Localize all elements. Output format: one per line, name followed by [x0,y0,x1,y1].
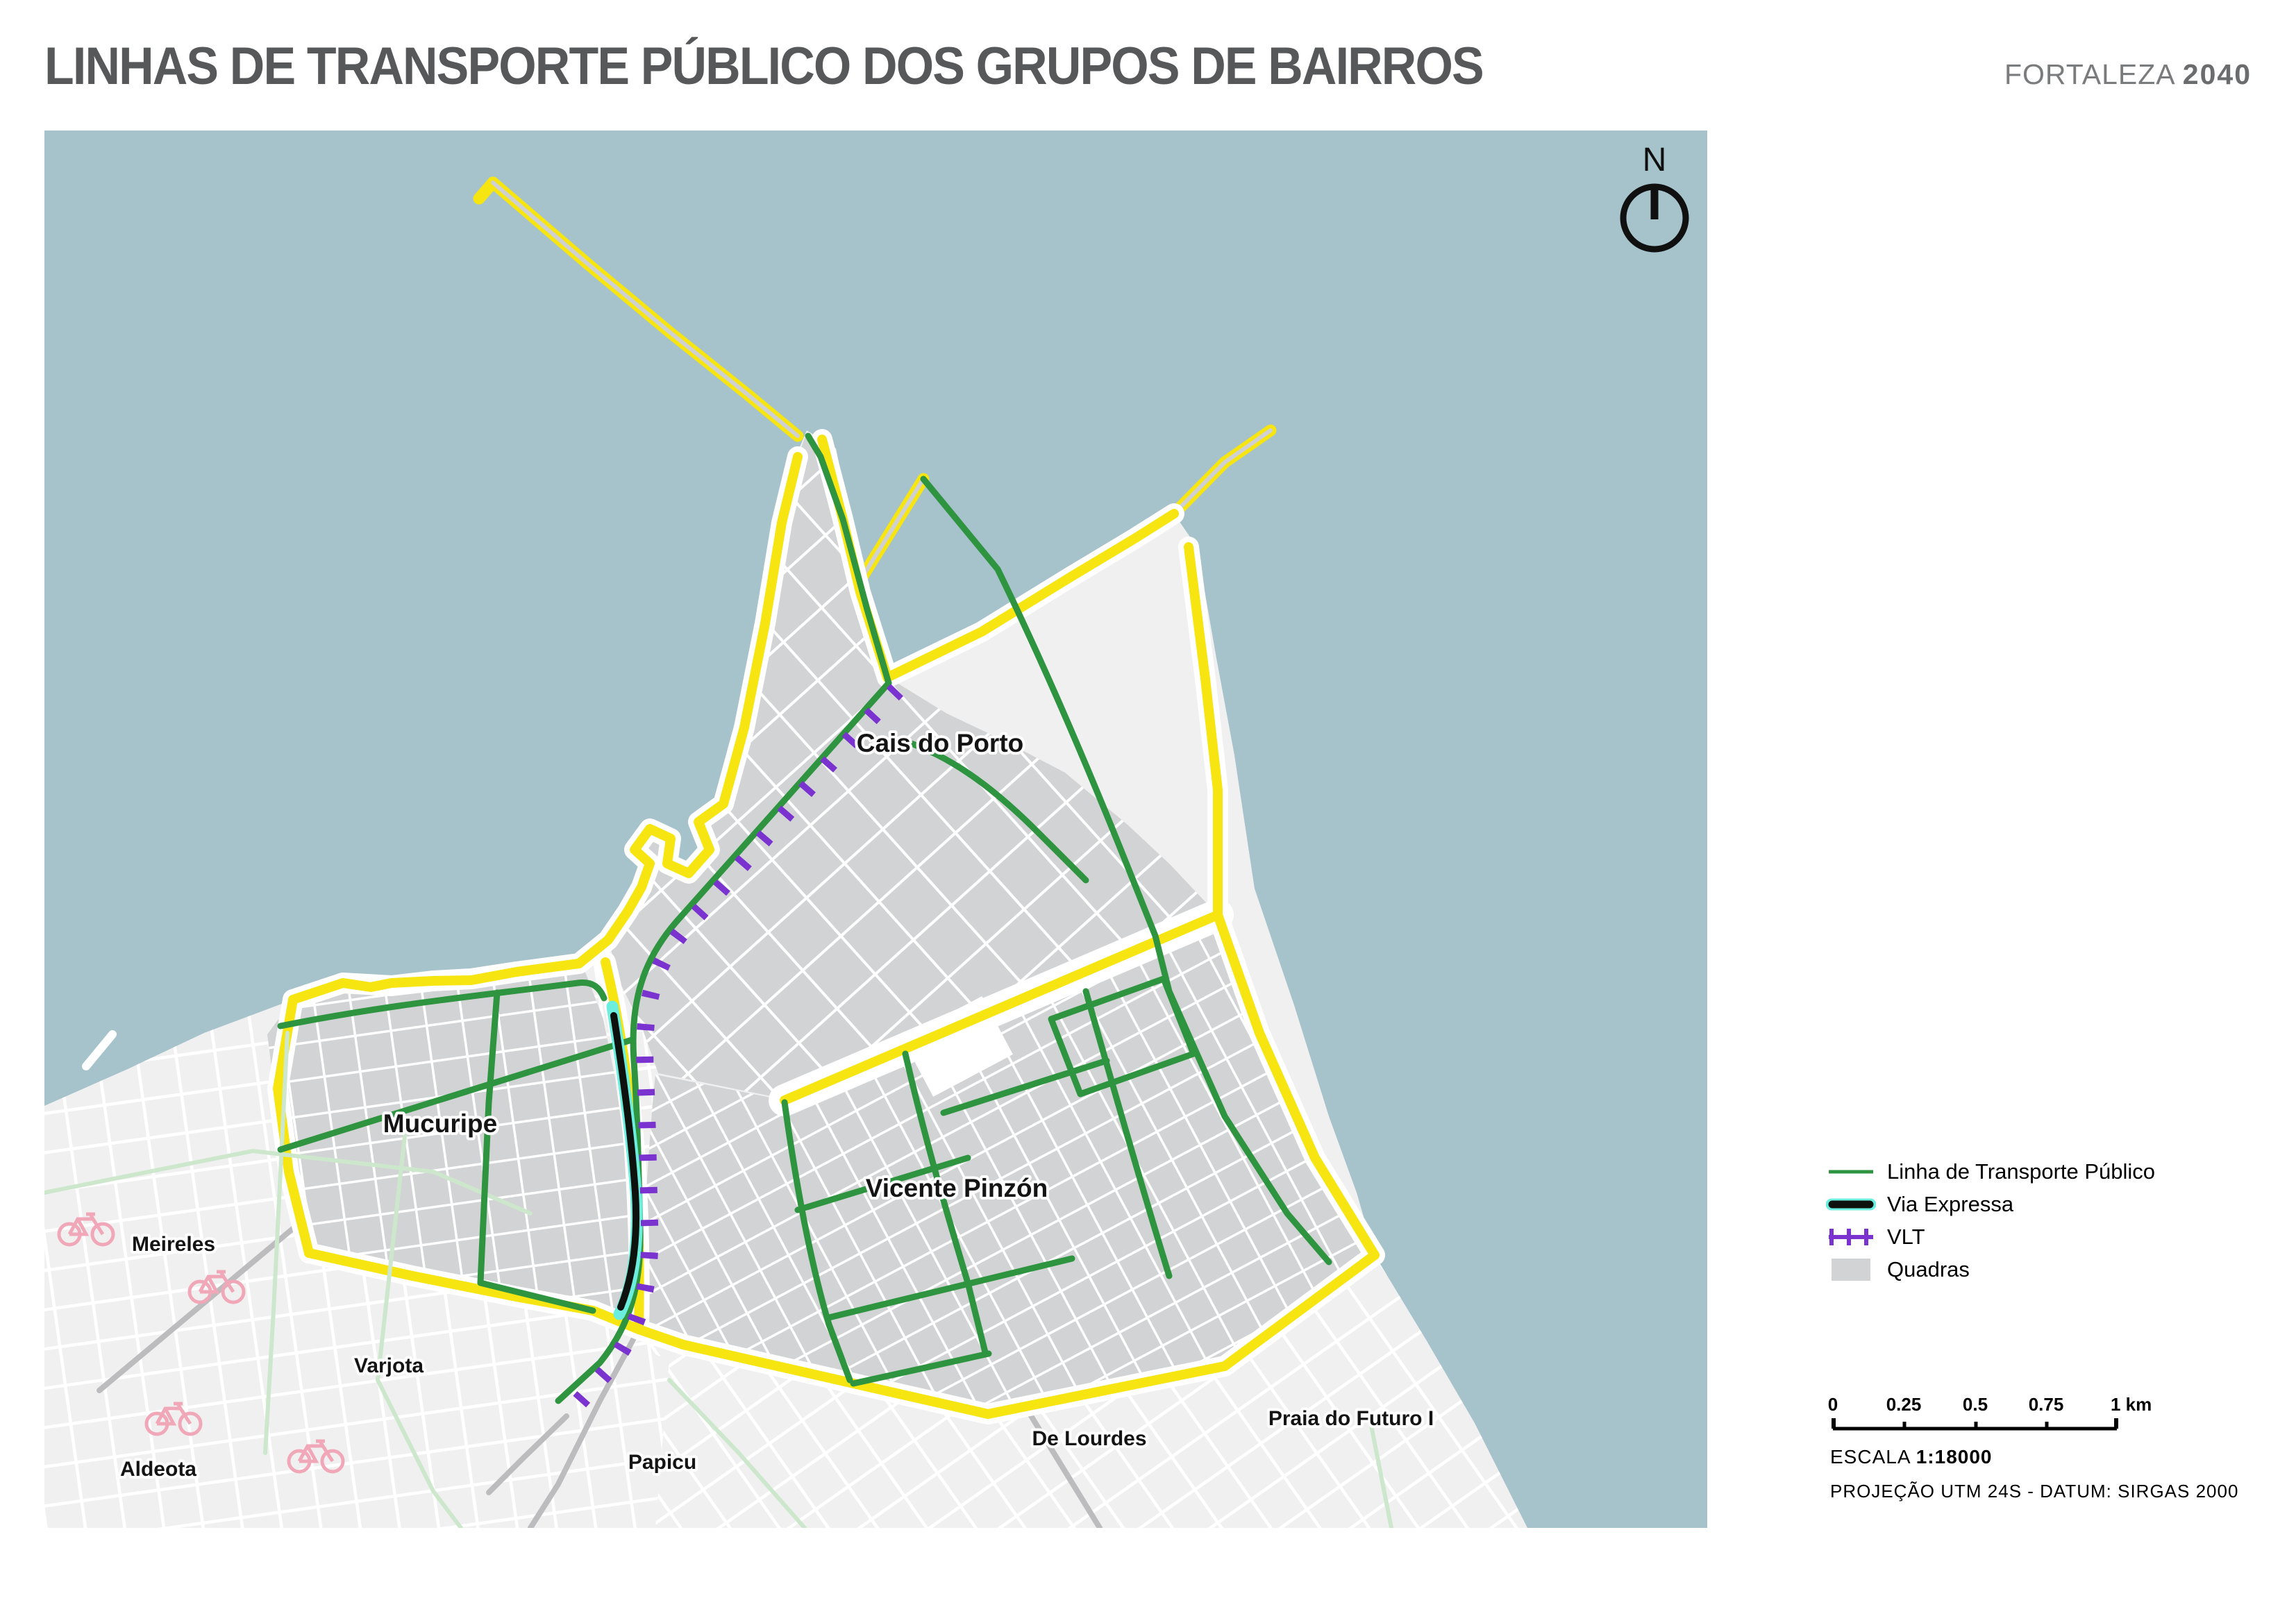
scalebar-tick: 1 km [2111,1394,2152,1415]
scalebar: 0 0.25 0.5 0.75 1 km ESCALA 1:18000 PROJ… [1830,1394,2163,1502]
brand: FORTALEZA 2040 [2004,58,2252,91]
map-canvas[interactable]: Cais do Porto Mucuripe Vicente Pinzón Me… [44,131,1707,1528]
north-arrow-label: N [1643,142,1667,178]
escala-line: ESCALA 1:18000 [1830,1446,2163,1468]
map-label-meireles: Meireles [132,1233,215,1256]
legend: Linha de Transporte Público Via Expressa… [1826,1155,2155,1286]
map-label-de-lourdes: De Lourdes [1032,1427,1146,1450]
legend-label: VLT [1887,1225,1925,1250]
escala-label: ESCALA [1830,1446,1910,1468]
page-title: LINHAS DE TRANSPORTE PÚBLICO DOS GRUPOS … [44,36,1483,96]
legend-label: Linha de Transporte Público [1887,1159,2155,1184]
map-label-mucuripe: Mucuripe [383,1109,497,1138]
brand-city: FORTALEZA [2004,58,2174,90]
transit-line-icon [1826,1159,1876,1184]
projection-line: PROJEÇÃO UTM 24S - DATUM: SIRGAS 2000 [1830,1481,2163,1502]
scalebar-tick: 0.25 [1886,1394,1922,1415]
map-label-cais-do-porto: Cais do Porto [857,729,1024,757]
scalebar-bar [1830,1418,2122,1433]
escala-value: 1:18000 [1916,1446,1993,1468]
scalebar-tick: 0 [1828,1394,1838,1415]
scalebar-tick: 0.75 [2029,1394,2064,1415]
legend-item-quadras: Quadras [1826,1253,2155,1286]
map-label-papicu: Papicu [628,1451,696,1474]
legend-item-via-expressa: Via Expressa [1826,1188,2155,1220]
legend-label: Via Expressa [1887,1192,2013,1217]
scalebar-tick-labels: 0 0.25 0.5 0.75 1 km [1830,1394,2163,1415]
map-label-aldeota: Aldeota [120,1458,196,1481]
legend-item-vlt: VLT [1826,1220,2155,1253]
map-svg: Cais do Porto Mucuripe Vicente Pinzón Me… [44,131,1707,1528]
vlt-icon [1826,1225,1876,1250]
map-label-vicente-pinzon: Vicente Pinzón [866,1174,1048,1202]
map-label-praia-do-futuro: Praia do Futuro I [1268,1407,1434,1430]
quadras-swatch-icon [1826,1257,1876,1282]
legend-label: Quadras [1887,1257,1970,1282]
map-label-varjota: Varjota [354,1354,424,1377]
legend-item-transit: Linha de Transporte Público [1826,1155,2155,1188]
brand-year: 2040 [2183,58,2252,90]
scalebar-tick: 0.5 [1963,1394,1988,1415]
via-expressa-icon [1826,1192,1876,1217]
